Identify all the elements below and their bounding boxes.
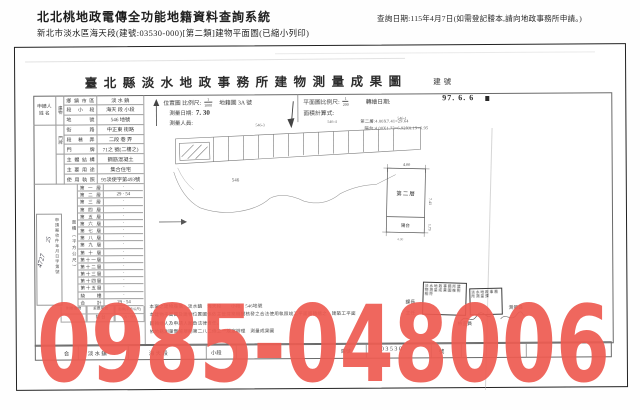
doc-title: 臺北縣淡水地政事務所建物測量成果圖 bbox=[70, 70, 422, 91]
info-row: 街路中正東 街路 bbox=[64, 125, 143, 135]
floor-label: 第三層 bbox=[78, 199, 104, 205]
info-label: 主要用途 bbox=[65, 165, 98, 174]
floor-value: · bbox=[104, 256, 143, 262]
floor-value: · bbox=[104, 263, 143, 269]
floor-value: · bbox=[104, 198, 143, 204]
info-label: 地號 bbox=[64, 115, 97, 124]
floor-value: · bbox=[104, 277, 143, 283]
parcel-label: 546 bbox=[232, 178, 240, 183]
applicant-name-label: 姓 名 bbox=[33, 110, 55, 117]
floor-label: 第十三層 bbox=[78, 270, 104, 276]
floor-label: 第二層 bbox=[78, 191, 104, 197]
handwriting-note: 25 bbox=[46, 236, 53, 243]
doorplate-strip-label: 門牌 bbox=[56, 126, 64, 155]
floor-value: 29 · 54 bbox=[104, 191, 143, 197]
strip-divider bbox=[431, 343, 432, 358]
floor-label: 第十五層 bbox=[78, 285, 104, 291]
strip-cell: 小段 bbox=[211, 349, 222, 357]
strip-cell: 合 bbox=[64, 350, 69, 358]
building-strip-label: 建物 bbox=[56, 96, 64, 126]
survey-document-scan: 臺北縣淡水地政事務所建物測量成果圖 建號 申請人 姓 名 建物 門牌 鄉鎮市區淡… bbox=[14, 43, 628, 391]
strip-divider bbox=[461, 343, 462, 358]
info-value: 546 地號 bbox=[97, 115, 143, 124]
floor-value: · bbox=[104, 284, 143, 290]
strip-cell: 號 bbox=[439, 347, 444, 355]
floor-label: 第四層 bbox=[78, 206, 104, 212]
annex-h2: 主要用途 bbox=[87, 306, 115, 313]
floor-plan-drawing: 4.00 第二層 7.41 陽台 1.73 4.00 bbox=[371, 159, 444, 251]
floor-value: · bbox=[104, 241, 143, 247]
floor-label: 第六層 bbox=[78, 220, 104, 226]
info-row: 段小段海天 段 小段 bbox=[64, 105, 143, 115]
floor-label: 第七層 bbox=[78, 227, 104, 233]
redraw-date-value: 97. 6. 6 bbox=[442, 93, 474, 102]
case-box-text: 申請案收件年月日字第號 bbox=[54, 218, 61, 304]
info-value: 鋼筋混凝土 bbox=[98, 154, 144, 163]
info-value: 71之 號(二樓之) bbox=[98, 145, 144, 154]
info-row: 主要用途集合住宅 bbox=[65, 164, 144, 174]
info-row: 地號546 地號 bbox=[64, 115, 143, 125]
floor-label: 第九層 bbox=[78, 242, 104, 248]
floor-label: 第八層 bbox=[78, 235, 104, 241]
info-value: 中正東 街路 bbox=[97, 125, 143, 134]
strip-cell: 海 天 段 bbox=[149, 349, 168, 357]
strip-divider bbox=[236, 345, 237, 360]
floor-label: 第十二層 bbox=[78, 263, 104, 269]
info-label: 使用執照 bbox=[65, 174, 98, 183]
parcel-label: 546-3 bbox=[255, 122, 264, 127]
document-subtitle: 新北市淡水區海天段(建號:03530-000)[第二類]建物平面圖(已縮小列印) bbox=[37, 27, 309, 39]
floor-label: 第十層 bbox=[78, 249, 104, 255]
info-label: 主體結構 bbox=[65, 155, 98, 164]
floor-value: · bbox=[104, 249, 143, 255]
parcel-label: 546-1 bbox=[397, 115, 406, 120]
area-column-label: 面積（平方公尺） bbox=[65, 184, 79, 306]
scan-streak bbox=[25, 58, 405, 63]
info-value: 二段 巷 弄 bbox=[97, 135, 143, 144]
dim-bottom: 4.00 bbox=[397, 237, 403, 241]
building-no-label: 建號 bbox=[433, 76, 454, 87]
info-row: 使用執照95淡使字第493號 bbox=[65, 174, 144, 184]
signature-squiggle bbox=[457, 307, 527, 329]
floor-value: · bbox=[104, 270, 143, 276]
floor-label: 騎樓 bbox=[78, 292, 104, 298]
info-row: 門牌71之 號(二樓之) bbox=[65, 145, 144, 155]
margin-empty-cell bbox=[57, 155, 65, 185]
floor-value: · bbox=[104, 220, 143, 226]
info-row: 段巷弄二段 巷 弄 bbox=[64, 135, 143, 145]
strip-cell: 建號 bbox=[341, 348, 351, 355]
case-number-box: 申請案收件年月日字第號 4727 25 bbox=[36, 214, 63, 306]
floor-label: 第一層 bbox=[78, 184, 104, 190]
cert-text: 本案之建物座落 淡水鎮 海天段 小段 546地號 本建物平面圖及建物位置圖係依主… bbox=[150, 301, 460, 336]
floor-value: · bbox=[104, 234, 143, 240]
strip-cell: 淡 水 鎮 bbox=[88, 349, 107, 357]
dim-top: 4.00 bbox=[403, 162, 410, 167]
info-row: 主體結構鋼筋混凝土 bbox=[65, 154, 144, 164]
info-label: 段巷弄 bbox=[64, 135, 97, 144]
info-value: 集合住宅 bbox=[98, 164, 144, 173]
floor-value: · bbox=[104, 227, 143, 233]
floor-value: · bbox=[104, 184, 143, 190]
floor-value: 29 · 54 bbox=[104, 299, 143, 305]
info-label: 街路 bbox=[64, 125, 97, 134]
strip-divider bbox=[128, 345, 129, 360]
floor-label: 第十四層 bbox=[78, 278, 104, 284]
handwriting-note: 4727 bbox=[36, 253, 47, 269]
strip-cell: 0 3 5 3 0 bbox=[381, 347, 402, 353]
query-system-page: 北北桃地政電傳全功能地籍資料查詢系統 查詢日期:115年4月7日(如需登記謄本,… bbox=[0, 0, 640, 410]
room-label: 第二層 bbox=[396, 189, 416, 197]
floor-table: 第一層· 第二層29 · 54 第三層· 第四層· 第五層· 第六層· 第七層·… bbox=[78, 184, 144, 306]
info-value: 海天 段 小段 bbox=[97, 105, 143, 114]
annex-use: 陽 台 bbox=[87, 314, 115, 321]
ink-mark bbox=[485, 96, 489, 101]
info-label: 鄉鎮市區 bbox=[64, 95, 97, 104]
annex-h1: 附屬建物 bbox=[61, 306, 87, 313]
bottom-strip: 合 淡 水 鎮 海 天 段 小段 建號 0 3 5 3 0 號 bbox=[35, 341, 612, 361]
floor-label: 第十一層 bbox=[78, 256, 104, 262]
scan-streak bbox=[275, 51, 595, 54]
floor-value: · bbox=[104, 292, 143, 298]
margin-empty-cell bbox=[33, 126, 56, 185]
dim-right: 7.41 bbox=[428, 198, 433, 205]
strip-divider bbox=[78, 345, 79, 360]
parcel-label: 546-4 bbox=[327, 119, 336, 124]
info-label: 段小段 bbox=[64, 105, 97, 114]
system-title: 北北桃地政電傳全功能地籍資料查詢系統 bbox=[37, 8, 271, 25]
info-value: 95淡使字第493號 bbox=[98, 174, 144, 183]
floor-label: 第五層 bbox=[78, 213, 104, 219]
info-value: 淡 水 鎮 bbox=[97, 95, 143, 104]
annex-area: 6 · 95 bbox=[115, 314, 145, 321]
strip-divider bbox=[206, 345, 207, 360]
applicant-box: 申請人 姓 名 bbox=[33, 96, 56, 126]
dim-balcony: 1.73 bbox=[427, 224, 431, 231]
info-row: 鄉鎮市區淡 水 鎮 bbox=[64, 95, 143, 105]
query-date: 查詢日期:115年4月7日(如需登記謄本,請向地政事務所申請。) bbox=[377, 13, 582, 24]
annex-table: 附屬建物 主要用途 面積(平方公尺) 陽 台 6 · 95 bbox=[61, 306, 145, 323]
floor-label: 合計 bbox=[78, 299, 104, 305]
floor-value: · bbox=[104, 213, 143, 219]
info-label: 門牌 bbox=[65, 145, 98, 154]
annex-empty bbox=[61, 315, 87, 322]
strip-divider bbox=[526, 343, 527, 358]
annex-value-row: 陽 台 6 · 95 bbox=[61, 314, 145, 323]
annex-h3: 面積(平方公尺) bbox=[115, 306, 145, 313]
floor-value: · bbox=[104, 206, 143, 212]
balcony-label: 陽台 bbox=[401, 222, 411, 229]
info-table: 鄉鎮市區淡 水 鎮 段小段海天 段 小段 地號546 地號 街路中正東 街路 段… bbox=[64, 95, 144, 184]
strip-divider bbox=[366, 344, 367, 359]
